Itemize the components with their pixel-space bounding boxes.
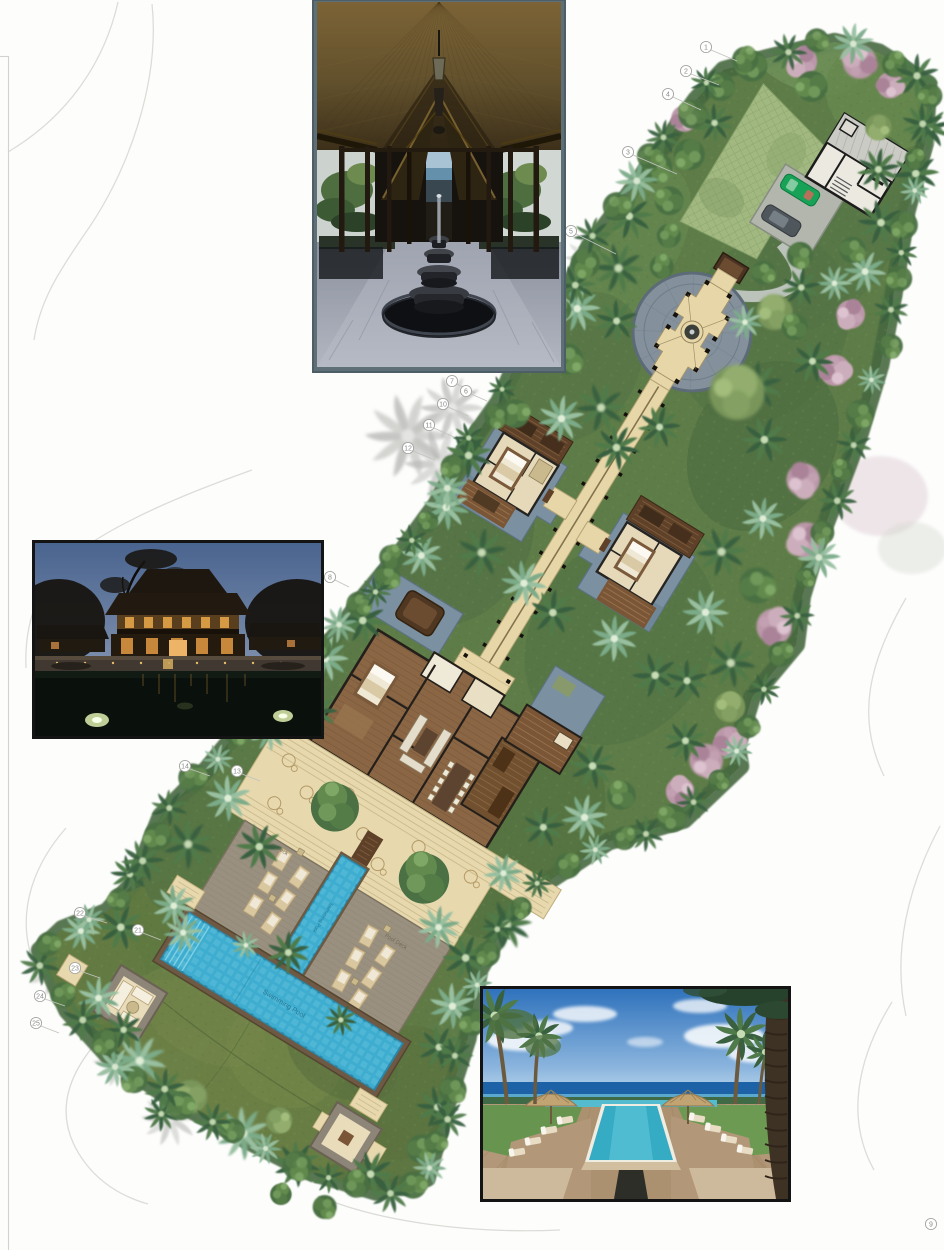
svg-text:7: 7 [450,378,454,385]
svg-text:12: 12 [404,445,412,452]
svg-text:8: 8 [328,574,332,581]
svg-text:6: 6 [464,388,468,395]
svg-text:9: 9 [929,1221,933,1228]
svg-text:1: 1 [704,44,708,51]
svg-text:13: 13 [233,768,241,775]
svg-text:23: 23 [71,965,79,972]
svg-text:3: 3 [626,149,630,156]
svg-text:22: 22 [76,910,84,917]
svg-text:24: 24 [36,993,44,1000]
svg-text:14: 14 [181,763,189,770]
svg-text:11: 11 [425,422,432,429]
svg-text:2: 2 [684,68,688,75]
svg-text:5: 5 [569,228,573,235]
svg-text:25: 25 [32,1020,40,1027]
svg-text:4: 4 [666,91,670,98]
svg-text:10: 10 [439,401,447,408]
svg-text:21: 21 [134,927,142,934]
